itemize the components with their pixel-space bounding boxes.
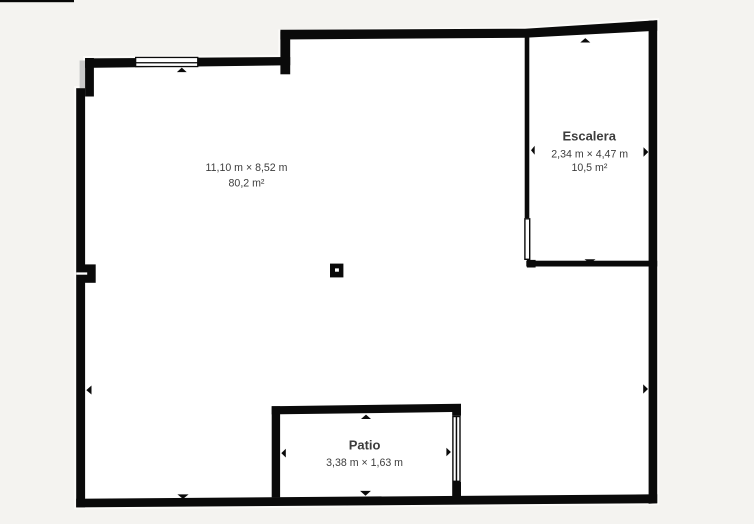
- svg-text:2,34 m × 4,47 m: 2,34 m × 4,47 m: [551, 148, 628, 160]
- svg-text:11,10 m × 8,52 m: 11,10 m × 8,52 m: [206, 162, 288, 174]
- svg-text:3,38 m × 1,63 m: 3,38 m × 1,63 m: [326, 457, 403, 469]
- svg-text:10,5 m²: 10,5 m²: [571, 162, 607, 174]
- svg-text:Patio: Patio: [349, 438, 381, 453]
- svg-text:Escalera: Escalera: [562, 129, 616, 144]
- svg-text:80,2 m²: 80,2 m²: [229, 177, 265, 189]
